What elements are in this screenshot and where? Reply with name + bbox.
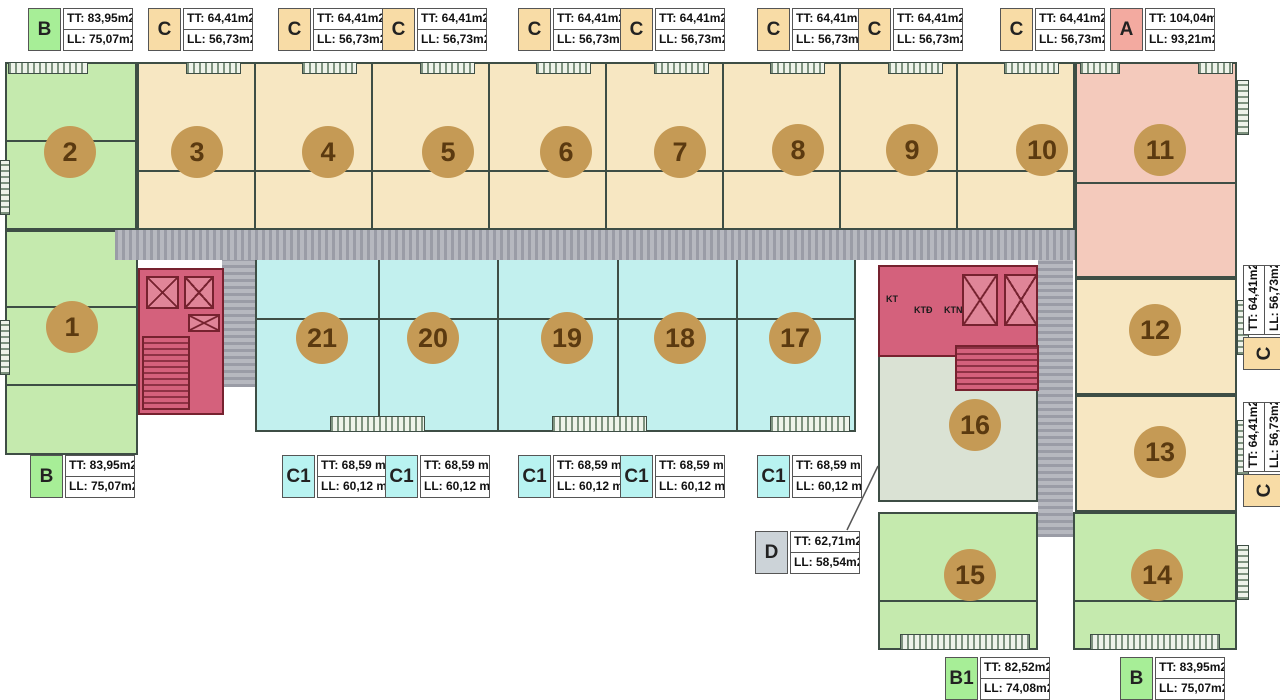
type-badge-c1: C1 (620, 455, 653, 498)
tt-value: TT: 62,71m2 (791, 532, 859, 553)
tt-value: TT: 68,59 m2 (318, 456, 386, 477)
room-wall (1077, 182, 1235, 184)
type-badge-c1: C1 (385, 455, 418, 498)
unit-18-circle: 18 (654, 312, 706, 364)
ll-value: LL: 56,73m2 (1265, 266, 1280, 334)
ll-value: LL: 75,07m2 (1156, 679, 1224, 699)
unit-17-circle: 17 (769, 312, 821, 364)
area-label-c-2: CTT: 64,41m2LL: 56,73m2 (278, 8, 383, 51)
area-label-d-16: DTT: 62,71m2LL: 58,54m2 (755, 531, 860, 574)
area-values: TT: 62,71m2LL: 58,54m2 (790, 531, 860, 574)
ll-value: LL: 60,12 m2 (318, 477, 386, 497)
ll-value: LL: 93,21m2 (1146, 30, 1214, 50)
tt-value: TT: 64,41m2 (554, 9, 622, 30)
type-badge-c1: C1 (757, 455, 790, 498)
elevator-icon (1004, 274, 1038, 326)
tt-value: TT: 64,41m2 (314, 9, 382, 30)
unit-6-circle: 6 (540, 126, 592, 178)
ll-value: LL: 56,73m2 (793, 30, 861, 50)
area-label-c-7: CTT: 64,41m2LL: 56,73m2 (858, 8, 963, 51)
unit-divider (497, 260, 499, 430)
left-lobby-corridor (222, 260, 255, 387)
type-badge-c1: C1 (282, 455, 315, 498)
tt-value: TT: 64,41m2 (1244, 266, 1265, 334)
tt-value: TT: 68,59 m2 (421, 456, 489, 477)
balcony (420, 62, 475, 74)
room-wall (139, 170, 1073, 172)
area-label-c-18: CTT: 64,41m2LL: 56,73m2 (1243, 402, 1280, 507)
area-label-b-20: BTT: 83,95m2LL: 75,07m2 (1120, 657, 1225, 700)
type-badge-c: C (148, 8, 181, 51)
balcony (1237, 545, 1249, 600)
tt-value: TT: 83,95m2 (66, 456, 134, 477)
area-values: TT: 64,41m2LL: 56,73m2 (183, 8, 253, 51)
tt-value: TT: 64,41m2 (894, 9, 962, 30)
area-values: TT: 104,04m2LL: 93,21m2 (1145, 8, 1215, 51)
balcony (552, 416, 647, 432)
unit-20-circle: 20 (407, 312, 459, 364)
area-label-c1-11: C1TT: 68,59 m2LL: 60,12 m2 (282, 455, 387, 498)
balcony (330, 416, 425, 432)
unit-19-circle: 19 (541, 312, 593, 364)
balcony (1090, 634, 1220, 650)
right-staircase (955, 345, 1039, 391)
unit-3-circle: 3 (171, 126, 223, 178)
unit-10-circle: 10 (1016, 124, 1068, 176)
area-label-b-10: BTT: 83,95m2LL: 75,07m2 (30, 455, 135, 498)
area-values: TT: 68,59 m2LL: 60,12 m2 (420, 455, 490, 498)
balcony (1080, 62, 1120, 74)
unit-9-circle: 9 (886, 124, 938, 176)
type-badge-b: B (1120, 657, 1153, 700)
unit-12-circle: 12 (1129, 304, 1181, 356)
balcony (302, 62, 357, 74)
type-badge-c1: C1 (518, 455, 551, 498)
elevator-icon (184, 276, 214, 309)
type-badge-c: C (1000, 8, 1033, 51)
unit-divider (722, 64, 724, 228)
area-label-c1-12: C1TT: 68,59 m2LL: 60,12 m2 (385, 455, 490, 498)
tt-value: TT: 83,95m2 (1156, 658, 1224, 679)
area-label-b1-19: B1TT: 82,52m2LL: 74,08m2 (945, 657, 1050, 700)
unit-divider (488, 64, 490, 228)
area-label-c-8: CTT: 64,41m2LL: 56,73m2 (1000, 8, 1105, 51)
tt-value: TT: 68,59 m2 (793, 456, 861, 477)
ll-value: LL: 60,12 m2 (656, 477, 724, 497)
type-badge-b: B (28, 8, 61, 51)
unit-2-circle: 2 (44, 126, 96, 178)
ll-value: LL: 56,73m2 (656, 30, 724, 50)
area-label-a-9: ATT: 104,04m2LL: 93,21m2 (1110, 8, 1215, 51)
unit-14-circle: 14 (1131, 549, 1183, 601)
type-badge-a: A (1110, 8, 1143, 51)
area-label-b-0: BTT: 83,95m2LL: 75,07m2 (28, 8, 133, 51)
ll-value: LL: 60,12 m2 (554, 477, 622, 497)
unit-16-circle: 16 (949, 399, 1001, 451)
unit-11-circle: 11 (1134, 124, 1186, 176)
area-values: TT: 83,95m2LL: 75,07m2 (1155, 657, 1225, 700)
area-values: TT: 64,41m2LL: 56,73m2 (1243, 402, 1280, 472)
core-label-kt: KT (886, 294, 898, 304)
tt-value: TT: 68,59 m2 (554, 456, 622, 477)
area-values: TT: 64,41m2LL: 56,73m2 (553, 8, 623, 51)
tt-value: TT: 104,04m2 (1146, 9, 1214, 30)
area-label-c1-13: C1TT: 68,59 m2LL: 60,12 m2 (518, 455, 623, 498)
area-values: TT: 64,41m2LL: 56,73m2 (893, 8, 963, 51)
elevator-icon (962, 274, 998, 326)
unit-4-circle: 4 (302, 126, 354, 178)
ll-value: LL: 56,73m2 (418, 30, 486, 50)
type-badge-c: C (1243, 337, 1280, 370)
balcony (8, 62, 88, 74)
unit-7-circle: 7 (654, 126, 706, 178)
area-values: TT: 83,95m2LL: 75,07m2 (63, 8, 133, 51)
core-label-ktn: KTN (944, 305, 963, 315)
area-values: TT: 64,41m2LL: 56,73m2 (313, 8, 383, 51)
type-badge-b: B (30, 455, 63, 498)
type-badge-c: C (518, 8, 551, 51)
balcony (770, 62, 825, 74)
core-label-ktđ: KTĐ (914, 305, 933, 315)
area-label-c1-15: C1TT: 68,59 m2LL: 60,12 m2 (757, 455, 862, 498)
area-label-c-17: CTT: 64,41m2LL: 56,73m2 (1243, 265, 1280, 370)
unit-15-circle: 15 (944, 549, 996, 601)
balcony (0, 320, 10, 375)
area-values: TT: 64,41m2LL: 56,73m2 (417, 8, 487, 51)
tt-value: TT: 82,52m2 (981, 658, 1049, 679)
area-values: TT: 68,59 m2LL: 60,12 m2 (553, 455, 623, 498)
ll-value: LL: 58,54m2 (791, 553, 859, 573)
type-badge-b1: B1 (945, 657, 978, 700)
unit-13-circle: 13 (1134, 426, 1186, 478)
unit-5-circle: 5 (422, 126, 474, 178)
unit-divider (605, 64, 607, 228)
unit-8-circle: 8 (772, 124, 824, 176)
balcony (1004, 62, 1059, 74)
shaft-icon (188, 314, 220, 332)
area-values: TT: 64,41m2LL: 56,73m2 (655, 8, 725, 51)
area-label-c-6: CTT: 64,41m2LL: 56,73m2 (757, 8, 862, 51)
elevator-icon (146, 276, 179, 309)
area-values: TT: 82,52m2LL: 74,08m2 (980, 657, 1050, 700)
area-values: TT: 64,41m2LL: 56,73m2 (792, 8, 862, 51)
type-badge-c: C (278, 8, 311, 51)
tt-value: TT: 64,41m2 (793, 9, 861, 30)
ll-value: LL: 60,12 m2 (421, 477, 489, 497)
area-values: TT: 64,41m2LL: 56,73m2 (1035, 8, 1105, 51)
room-wall (880, 600, 1036, 602)
type-badge-c: C (757, 8, 790, 51)
area-label-c-3: CTT: 64,41m2LL: 56,73m2 (382, 8, 487, 51)
unit-21-circle: 21 (296, 312, 348, 364)
ll-value: LL: 56,73m2 (1265, 403, 1280, 471)
area-label-c-4: CTT: 64,41m2LL: 56,73m2 (518, 8, 623, 51)
area-label-c1-14: C1TT: 68,59 m2LL: 60,12 m2 (620, 455, 725, 498)
apartment-floor-plan: 123456789101112131415161718192021BTT: 83… (0, 0, 1280, 700)
area-values: TT: 68,59 m2LL: 60,12 m2 (655, 455, 725, 498)
ll-value: LL: 75,07m2 (64, 30, 132, 50)
tt-value: TT: 64,41m2 (1036, 9, 1104, 30)
balcony (1198, 62, 1233, 74)
unit-divider (371, 64, 373, 228)
unit-divider (839, 64, 841, 228)
area-values: TT: 83,95m2LL: 75,07m2 (65, 455, 135, 498)
ll-value: LL: 56,73m2 (1036, 30, 1104, 50)
area-values: TT: 68,59 m2LL: 60,12 m2 (317, 455, 387, 498)
type-badge-c: C (858, 8, 891, 51)
ll-value: LL: 74,08m2 (981, 679, 1049, 699)
type-badge-c: C (382, 8, 415, 51)
type-badge-c: C (620, 8, 653, 51)
area-label-c-5: CTT: 64,41m2LL: 56,73m2 (620, 8, 725, 51)
ll-value: LL: 56,73m2 (184, 30, 252, 50)
ll-value: LL: 56,73m2 (314, 30, 382, 50)
tt-value: TT: 64,41m2 (1244, 403, 1265, 471)
unit-divider (736, 260, 738, 430)
room-wall (7, 384, 136, 386)
ll-value: LL: 56,73m2 (554, 30, 622, 50)
unit-1-circle: 1 (46, 301, 98, 353)
ll-value: LL: 60,12 m2 (793, 477, 861, 497)
balcony (770, 416, 850, 432)
unit-divider (956, 64, 958, 228)
balcony (1237, 80, 1249, 135)
balcony (900, 634, 1030, 650)
balcony (0, 160, 10, 215)
unit-divider (617, 260, 619, 430)
ll-value: LL: 75,07m2 (66, 477, 134, 497)
right-vertical-corridor (1038, 260, 1073, 537)
tt-value: TT: 64,41m2 (418, 9, 486, 30)
main-corridor (115, 230, 1075, 260)
tt-value: TT: 83,95m2 (64, 9, 132, 30)
ll-value: LL: 56,73m2 (894, 30, 962, 50)
balcony (536, 62, 591, 74)
tt-value: TT: 64,41m2 (656, 9, 724, 30)
tt-value: TT: 68,59 m2 (656, 456, 724, 477)
area-values: TT: 64,41m2LL: 56,73m2 (1243, 265, 1280, 335)
left-staircase (142, 336, 190, 410)
balcony (654, 62, 709, 74)
type-badge-c: C (1243, 474, 1280, 507)
tt-value: TT: 64,41m2 (184, 9, 252, 30)
unit-divider (254, 64, 256, 228)
area-values: TT: 68,59 m2LL: 60,12 m2 (792, 455, 862, 498)
balcony (186, 62, 241, 74)
type-badge-d: D (755, 531, 788, 574)
unit-divider (378, 260, 380, 430)
balcony (888, 62, 943, 74)
area-label-c-1: CTT: 64,41m2LL: 56,73m2 (148, 8, 253, 51)
